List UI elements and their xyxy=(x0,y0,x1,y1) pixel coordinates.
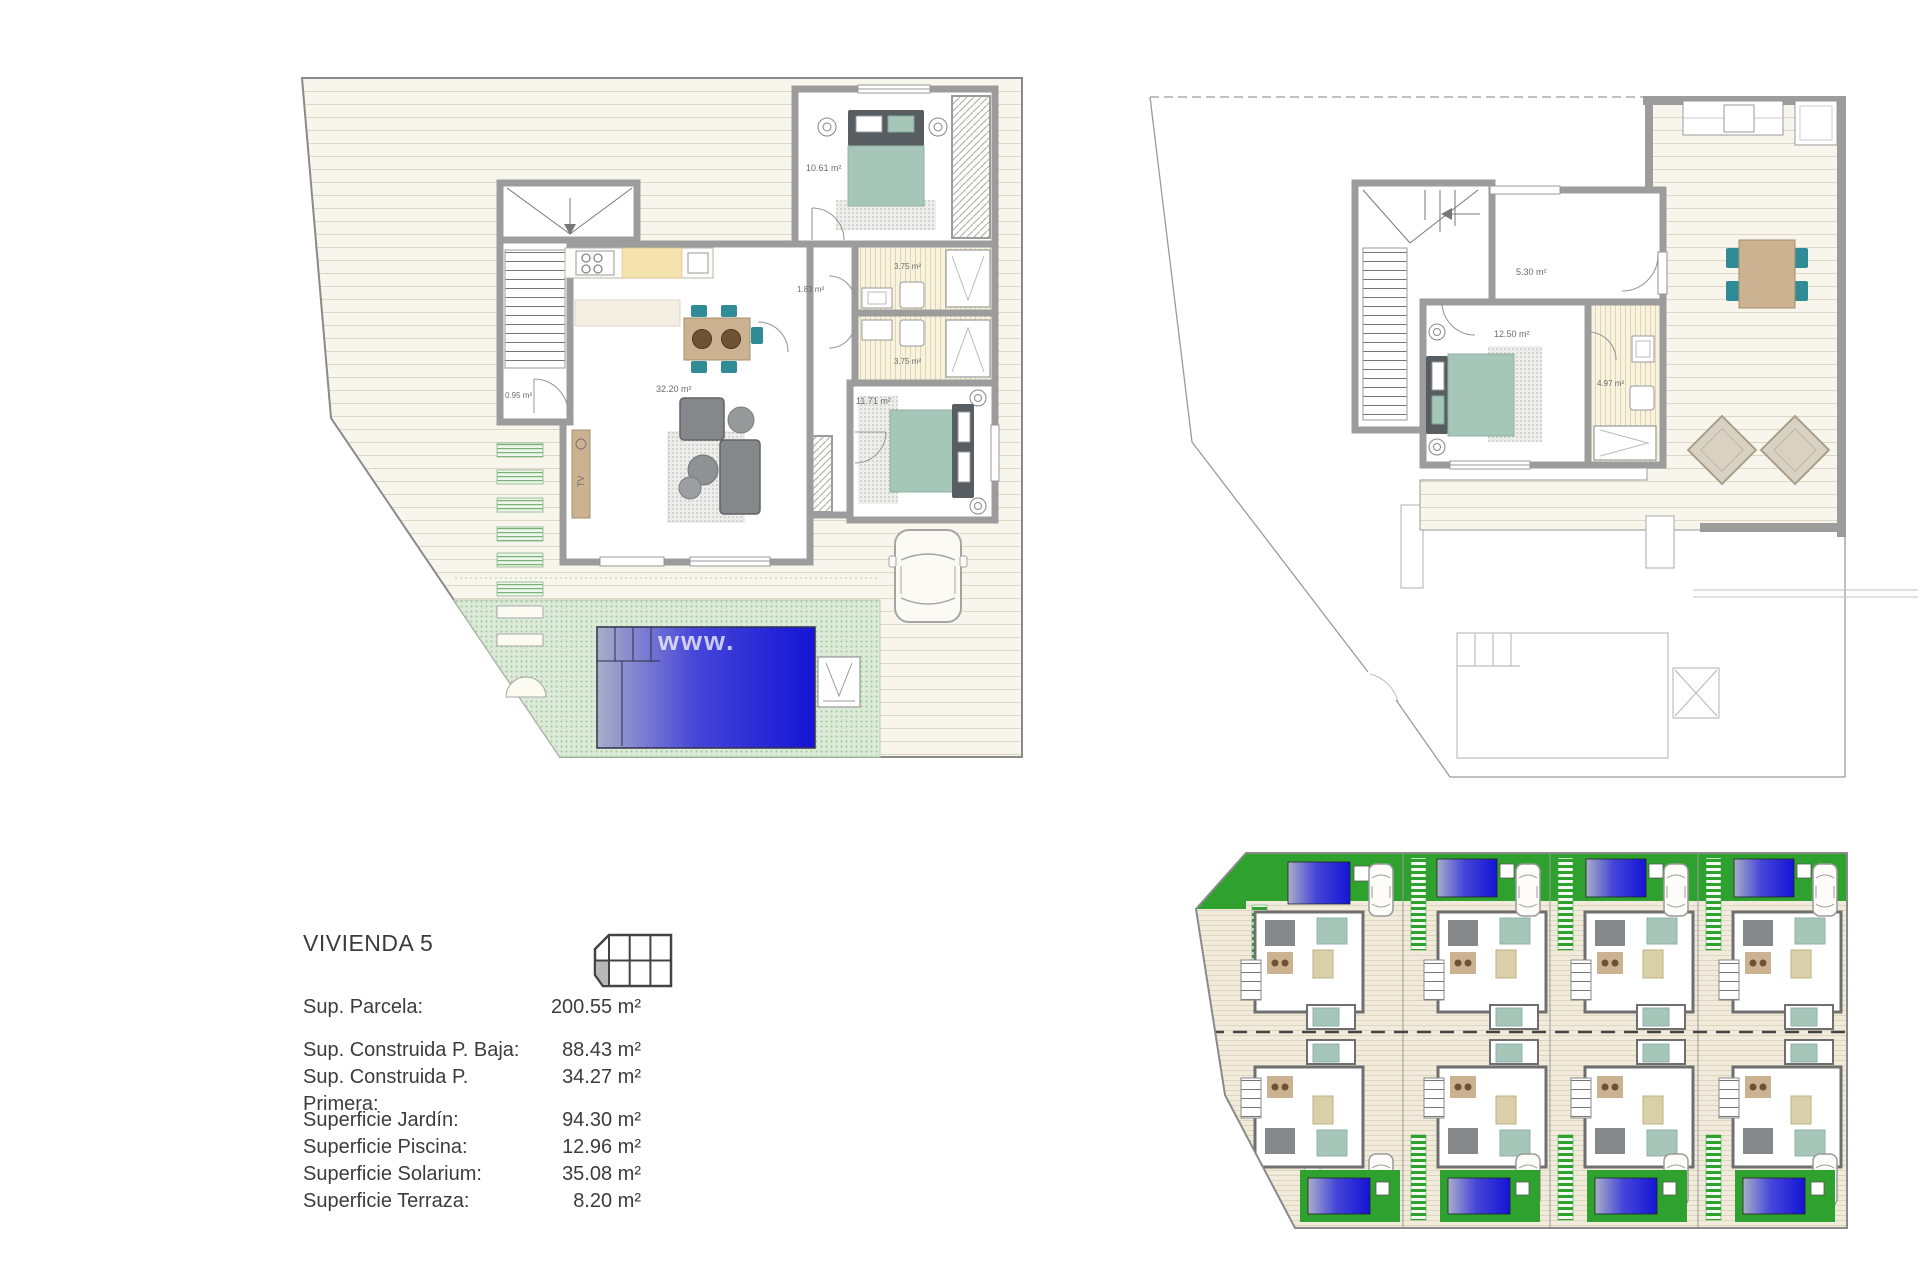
row-label: Superficie Solarium: xyxy=(303,1161,531,1188)
info-row-solarium: Superficie Solarium: 35.08 m² xyxy=(303,1161,641,1188)
label-bedroom-first: 12.50 m² xyxy=(1494,329,1530,339)
closet xyxy=(952,96,990,238)
site-plan xyxy=(1180,850,1850,1230)
outdoor-shower xyxy=(818,657,860,707)
row-value: 88.43 m² xyxy=(531,1037,641,1064)
label-bedroom-right: 11.71 m² xyxy=(856,396,891,406)
row-label: Sup. Construida P. Primera: xyxy=(303,1064,531,1091)
info-row-parcela: Sup. Parcela: 200.55 m² xyxy=(303,994,641,1021)
label-hall: 1.83 m² xyxy=(797,285,824,294)
label-bedroom-top: 10.61 m² xyxy=(806,163,842,173)
row-label: Sup. Parcela: xyxy=(303,994,531,1021)
floorplan-sheet: TV 0.95 m² 32.20 m² 1.83 m² 3.75 m² 3.75… xyxy=(0,0,1920,1280)
row-label: Superficie Terraza: xyxy=(303,1188,531,1215)
watermark: www. xyxy=(658,626,736,657)
unit-locator-icon xyxy=(592,932,674,990)
tv-cabinet: TV xyxy=(572,430,590,518)
info-row-construida-primera: Sup. Construida P. Primera: 34.27 m² xyxy=(303,1064,641,1091)
info-row-construida-baja: Sup. Construida P. Baja: 88.43 m² xyxy=(303,1037,641,1064)
label-bath-bottom: 3.75 m² xyxy=(894,357,921,366)
entry-gate-arc xyxy=(1370,674,1398,702)
first-floor-plan: 5.30 m² 12.50 m² 4.97 m² xyxy=(1150,96,1918,777)
label-bath-top: 3.75 m² xyxy=(894,262,921,271)
info-row-terraza: Superficie Terraza: 8.20 m² xyxy=(303,1188,641,1215)
info-panel: VIVIENDA 5 Sup. Parcela: 200.55 m² Sup. … xyxy=(303,928,641,1215)
tv-label: TV xyxy=(576,475,586,487)
row-value: 94.30 m² xyxy=(531,1107,641,1134)
label-bath-first: 4.97 m² xyxy=(1597,379,1624,388)
label-hall-first: 5.30 m² xyxy=(1516,267,1547,277)
double-bed-first xyxy=(1426,346,1542,442)
row-value: 12.96 m² xyxy=(531,1134,641,1161)
label-entry: 0.95 m² xyxy=(505,391,532,400)
double-bed-top xyxy=(836,110,936,230)
double-bed-right xyxy=(858,396,974,504)
street-edge xyxy=(1693,590,1918,597)
info-row-jardin: Superficie Jardín: 94.30 m² xyxy=(303,1107,641,1134)
label-living: 32.20 m² xyxy=(656,384,692,394)
plans-drawing: TV 0.95 m² 32.20 m² 1.83 m² 3.75 m² 3.75… xyxy=(0,0,1920,1280)
row-label: Superficie Piscina: xyxy=(303,1134,531,1161)
sofa-group xyxy=(668,398,760,522)
sheet-title: VIVIENDA 5 xyxy=(303,928,641,958)
deck-planter xyxy=(1646,516,1674,568)
row-value: 34.27 m² xyxy=(531,1064,641,1091)
row-value: 200.55 m² xyxy=(531,994,641,1021)
car-top-view xyxy=(889,530,967,622)
row-label: Superficie Jardín: xyxy=(303,1107,531,1134)
row-label: Sup. Construida P. Baja: xyxy=(303,1037,531,1064)
row-value: 8.20 m² xyxy=(531,1188,641,1215)
row-value: 35.08 m² xyxy=(531,1161,641,1188)
info-row-piscina: Superficie Piscina: 12.96 m² xyxy=(303,1134,641,1161)
